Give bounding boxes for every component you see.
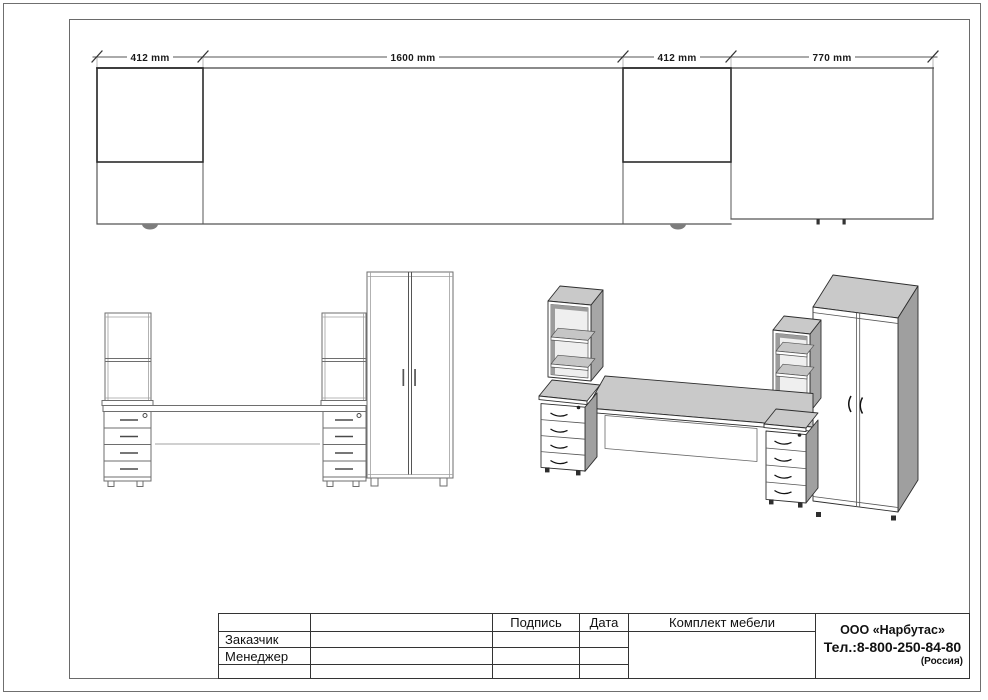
iso-right-pedestal: [764, 409, 818, 508]
wardrobe-handle-left: [403, 369, 405, 386]
left-pedestal-lock: [143, 414, 147, 418]
signature-column-header: Подпись: [493, 614, 579, 632]
left-pedestal-foot-1: [108, 481, 114, 487]
manager-signature-cell: [493, 648, 579, 665]
elevation-wardrobe: [367, 272, 453, 486]
empty-cell: [493, 665, 579, 678]
customer-name-cell: [311, 632, 492, 648]
front-elevation-view: [102, 272, 453, 487]
wardrobe-foot-right: [440, 478, 447, 486]
customer-row-label: Заказчик: [219, 632, 310, 648]
plan-left-grommet: [142, 224, 158, 230]
title-block-signature-column: Подпись: [493, 614, 580, 678]
title-block-company-column: ООО «Нарбутас» Тел.:8-800-250-84-80 (Рос…: [816, 614, 969, 678]
iso-left-pedestal: [539, 380, 600, 475]
customer-label-text: Заказчик: [225, 632, 278, 647]
dim-label-wardrobe: 770 mm: [812, 53, 851, 64]
plan-view: 412 mm 1600 mm 412 mm 770 mm: [92, 51, 938, 230]
right-pedestal-lock: [357, 414, 361, 418]
plan-right-grommet: [670, 224, 686, 230]
empty-cell: [219, 665, 310, 678]
manager-row-label: Менеджер: [219, 648, 310, 665]
customer-signature-cell: [493, 632, 579, 648]
elevation-right-pedestal: [323, 412, 366, 487]
plan-left-shelf-unit: [97, 68, 203, 162]
product-title-text: Комплект мебели: [669, 615, 775, 630]
drawing-canvas: 412 mm 1600 mm 412 mm 770 mm: [0, 0, 988, 700]
title-block: Заказчик Менеджер Подпись Дата Комплект …: [218, 613, 970, 679]
title-block-role-column: Заказчик Менеджер: [219, 614, 311, 678]
empty-cell: [219, 614, 310, 632]
plan-right-shelf-unit: [623, 68, 731, 162]
plan-wardrobe-hinge-1: [817, 219, 820, 225]
customer-date-cell: [580, 632, 628, 648]
company-info: ООО «Нарбутас» Тел.:8-800-250-84-80 (Рос…: [816, 614, 969, 678]
iso-left-shelf-unit: [548, 286, 603, 381]
wardrobe-handle-right: [414, 369, 416, 386]
elevation-left-shelf-unit: [105, 313, 151, 402]
product-notes-cell: [629, 632, 815, 678]
title-block-date-column: Дата: [580, 614, 629, 678]
paper-sheet: 412 mm 1600 mm 412 mm 770 mm: [0, 0, 988, 700]
elevation-right-shelf-unit: [322, 313, 366, 402]
signature-header-text: Подпись: [510, 615, 561, 630]
left-pedestal-foot-2: [137, 481, 143, 487]
date-header-text: Дата: [590, 615, 619, 630]
company-name: ООО «Нарбутас»: [820, 623, 965, 639]
title-block-product-column: Комплект мебели: [629, 614, 816, 678]
elevation-desk-top: [103, 406, 366, 412]
isometric-view: [539, 275, 918, 521]
elevation-left-pedestal: [104, 412, 151, 487]
plan-outline: [97, 68, 933, 230]
company-phone: Тел.:8-800-250-84-80: [820, 639, 965, 657]
empty-cell: [311, 614, 492, 632]
product-name-cell: Комплект мебели: [629, 614, 815, 632]
empty-cell: [580, 665, 628, 678]
dim-label-left-cabinet: 412 mm: [130, 53, 169, 64]
manager-date-cell: [580, 648, 628, 665]
company-country: (Россия): [820, 656, 965, 669]
right-pedestal-foot-1: [327, 481, 333, 487]
date-column-header: Дата: [580, 614, 628, 632]
elevation-right-pad: [321, 401, 367, 406]
wardrobe-foot-left: [371, 478, 378, 486]
title-block-name-column: [311, 614, 493, 678]
manager-label-text: Менеджер: [225, 649, 288, 664]
plan-wardrobe-hinge-2: [843, 219, 846, 225]
dimension-line: 412 mm 1600 mm 412 mm 770 mm: [92, 51, 938, 67]
sheet: { "plan_dimensions": { "d1": "412 mm", "…: [0, 0, 988, 700]
empty-cell: [311, 665, 492, 678]
manager-name-cell: [311, 648, 492, 665]
right-pedestal-foot-2: [353, 481, 359, 487]
dim-label-desk: 1600 mm: [391, 53, 436, 64]
elevation-left-pad: [102, 401, 153, 406]
dim-label-right-cabinet: 412 mm: [657, 53, 696, 64]
iso-wardrobe: [813, 275, 918, 521]
